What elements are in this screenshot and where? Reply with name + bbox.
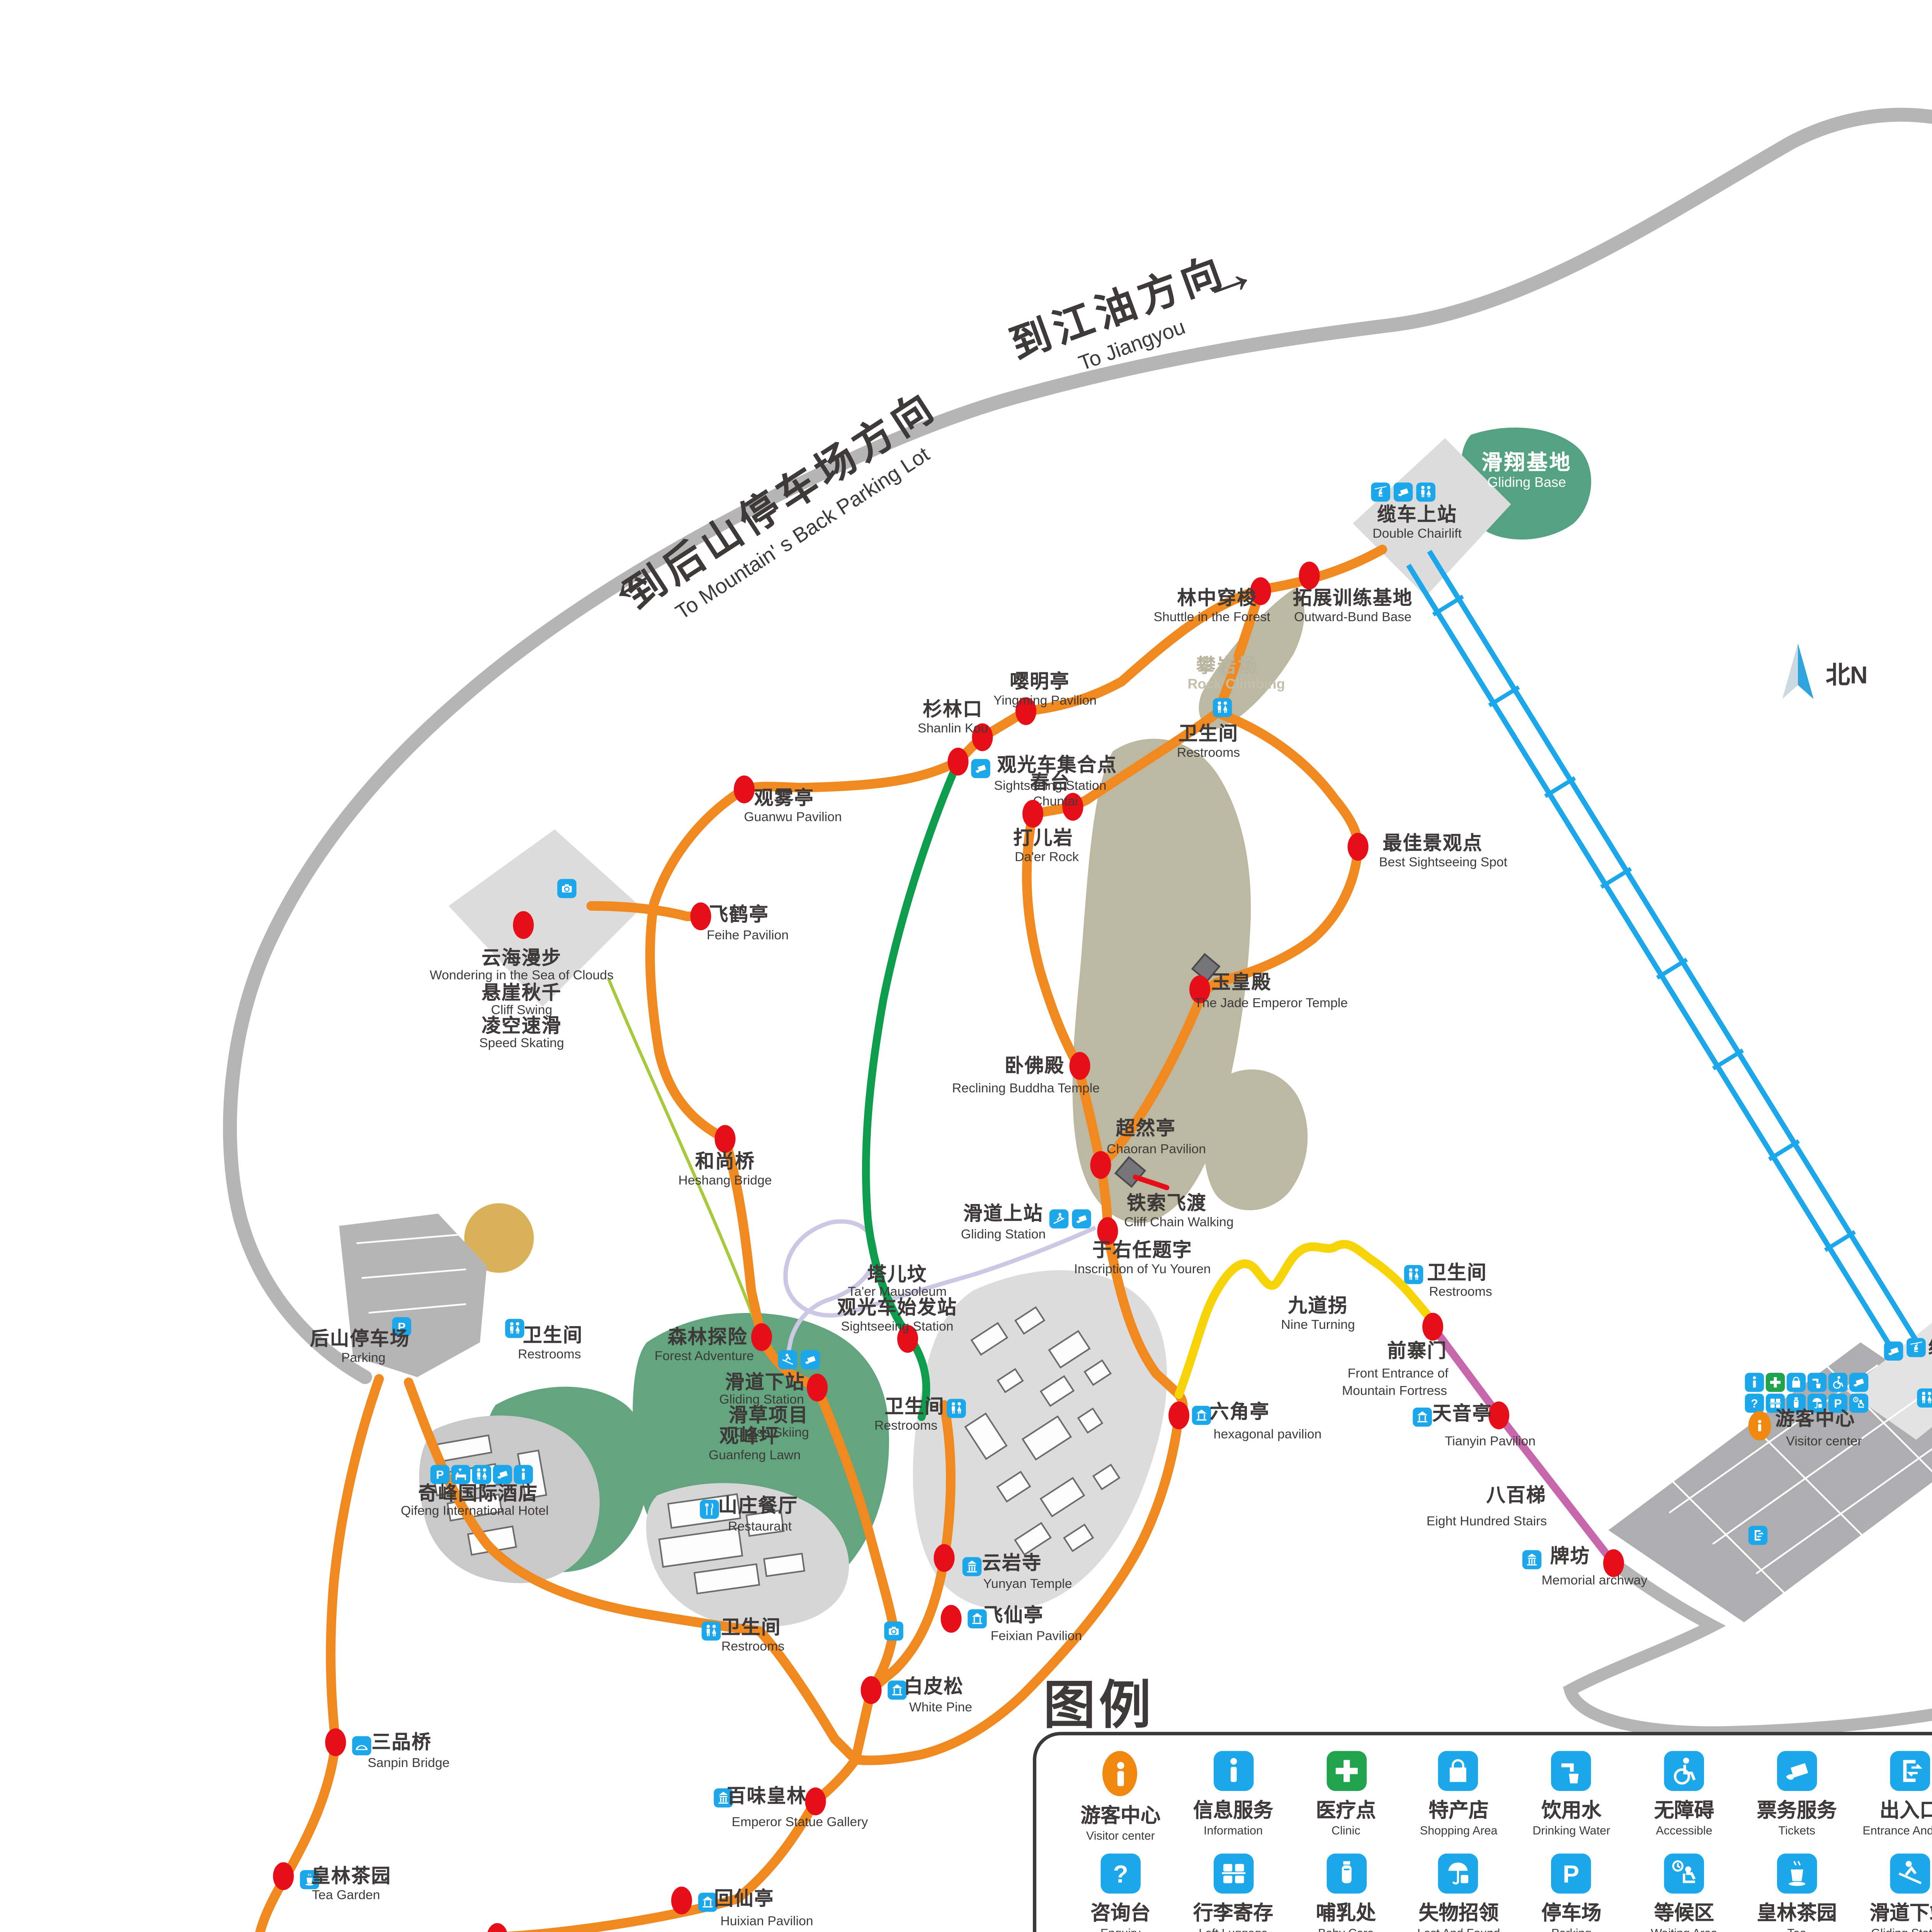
enquiry-icon-glyph: ? — [1747, 1395, 1762, 1411]
wheelchair-icon — [1664, 1751, 1704, 1791]
restroom-icon-glyph — [703, 1623, 719, 1639]
enquiry-icon: ? — [1100, 1854, 1141, 1894]
poi-label-yingming-pavilion-0: 嘤明亭 — [1010, 674, 1070, 693]
legend-zh-label: 哺乳处 — [1316, 1899, 1376, 1927]
info-icon-glyph — [515, 1467, 531, 1483]
poi-label-outward-bund-base-0: 拓展训练基地 — [1293, 590, 1413, 610]
door-icon-glyph — [1750, 1527, 1766, 1543]
pavilion-icon-glyph — [889, 1682, 905, 1698]
restroom-icon-glyph — [1418, 484, 1434, 500]
legend-item-r2-4: P停车场Parking — [1515, 1854, 1628, 1932]
restroom-icon-glyph — [507, 1321, 523, 1337]
poi-label-huixian-pavilion-0: 回仙亭 — [714, 1891, 774, 1910]
legend-zh-label: 信息服务 — [1193, 1796, 1273, 1824]
glide-up-icon — [1049, 1209, 1069, 1229]
legend-en-label: Drinking Water — [1532, 1826, 1610, 1838]
poi-label-jade-emperor-temple-1: The Jade Emperor Temple — [1194, 997, 1348, 1010]
restroom-icon — [1404, 1265, 1423, 1284]
waiting-icon — [1664, 1854, 1704, 1894]
north-arrow-icon — [1777, 640, 1819, 709]
poi-label-best-sightseeing-spot-0: 最佳景观点 — [1383, 835, 1483, 855]
temple-icon-glyph — [1524, 1552, 1540, 1568]
camera-icon — [557, 879, 577, 898]
legend-item-r1-2: 医疗点Clinic — [1289, 1751, 1402, 1844]
poi-dot-daer-rock — [1022, 800, 1043, 828]
door-icon-glyph — [1893, 1755, 1926, 1788]
parking-icon: P — [430, 1465, 450, 1484]
pavilion-icon — [1192, 1406, 1211, 1425]
poi-label-cliff-chain-walking-0: 铁索飞渡 — [1127, 1196, 1207, 1215]
poi-label-sea-of-clouds-3: Cliff Swing — [491, 1004, 553, 1017]
chairlift-icon-glyph — [1373, 484, 1389, 500]
poi-label-cable-bottom-station-0: 缆车下站 — [1929, 1340, 1932, 1359]
restroom-icon — [1416, 483, 1435, 502]
legend-item-r1-4: 饮用水Drinking Water — [1515, 1751, 1628, 1844]
poi-label-nine-turning-1: Nine Turning — [1281, 1318, 1355, 1332]
luggage-icon — [1213, 1854, 1253, 1894]
poi-label-memorial-archway-0: 牌坊 — [1550, 1548, 1590, 1568]
legend-en-label: Clinic — [1332, 1826, 1361, 1838]
poi-label-sanpin-bridge-0: 三品桥 — [372, 1735, 432, 1754]
poi-dot-feihe-pavilion — [690, 903, 711, 930]
poi-label-yu-youren-inscription-0: 于右任题字 — [1092, 1242, 1192, 1262]
ticket-icon-glyph — [803, 1352, 818, 1368]
poi-label-gliding-base-0: 滑翔基地 — [1481, 452, 1572, 473]
glide-down-icon — [1889, 1854, 1930, 1894]
poi-label-forest-adventure-0: 森林探险 — [668, 1329, 748, 1349]
restroom-icon-glyph — [1919, 1390, 1932, 1406]
glide-down-icon-glyph — [780, 1352, 796, 1368]
poi-label-restroom-villa-0: 卫生间 — [721, 1620, 781, 1639]
parking-icon-glyph: P — [432, 1467, 448, 1483]
cable-tick — [1769, 1141, 1799, 1159]
cable-tick — [1489, 687, 1519, 705]
restroom-icon — [505, 1319, 524, 1338]
legend-en-label: Tickets — [1778, 1826, 1815, 1838]
cable-tick — [1825, 1232, 1855, 1250]
chairlift-icon-glyph — [1908, 1340, 1924, 1355]
poi-dot-outward-bund-base — [1299, 562, 1320, 590]
ticket-icon — [1849, 1373, 1869, 1392]
cable-tick — [1657, 959, 1687, 978]
parking-icon-glyph: P — [1830, 1395, 1846, 1411]
chairlift-icon — [1906, 1338, 1926, 1357]
poi-label-visitor-center-0: 游客中心 — [1776, 1411, 1855, 1430]
restroom-icon — [1917, 1388, 1932, 1408]
legend-zh-label: 出入口 — [1879, 1796, 1932, 1824]
ticket-icon-glyph — [1395, 484, 1411, 500]
legend-title: 图例 — [1043, 1662, 1155, 1739]
legend-item-r1-6: 票务服务Tickets — [1740, 1751, 1853, 1844]
legend-zh-label: 皇林茶园 — [1757, 1899, 1837, 1927]
legend-item-r1-7: 出入口Entrance And Exit — [1853, 1751, 1932, 1844]
poi-label-shuttle-in-the-forest-0: 林中穿梭 — [1177, 590, 1257, 610]
poi-dot-glide-bottom-station — [807, 1374, 828, 1401]
ticket-icon-glyph — [1780, 1755, 1813, 1788]
poi-label-taer-sightseeing-start-3: Sightseeing Station — [841, 1320, 954, 1333]
legend-zh-label: 特产店 — [1429, 1796, 1488, 1824]
bridge-icon-glyph — [354, 1738, 370, 1754]
glide-up-icon-glyph — [1051, 1211, 1067, 1227]
camera-icon-glyph — [559, 881, 575, 896]
north-compass: 北N — [1777, 640, 1868, 709]
legend-item-r2-1: 行李寄存Left Luggage — [1177, 1854, 1290, 1932]
camera-icon-glyph — [886, 1623, 902, 1639]
poi-label-hexagonal-pavilion-0: 六角亭 — [1210, 1404, 1270, 1423]
svg-text:?: ? — [1751, 1397, 1758, 1410]
poi-label-outward-bund-base-1: Outward-Bund Base — [1294, 611, 1412, 624]
restroom-icon — [1213, 698, 1232, 718]
poi-label-cable-top-station-0: 缆车上站 — [1377, 507, 1457, 526]
poi-label-restroom-north-0: 卫生间 — [1179, 726, 1238, 745]
legend-item-r2-6: 皇林茶园Tea — [1740, 1854, 1853, 1932]
ticket-icon — [1777, 1751, 1817, 1791]
poi-label-rock-climbing-0: 攀岩场 — [1196, 658, 1259, 677]
waiting-icon-glyph — [1668, 1857, 1701, 1890]
camera-icon — [884, 1621, 903, 1641]
legend-zh-label: 停车场 — [1541, 1899, 1601, 1927]
info-icon-glyph — [1217, 1755, 1250, 1788]
poi-label-forest-adventure-1: Forest Adventure — [655, 1350, 754, 1363]
legend-en-label: Parking — [1551, 1929, 1592, 1932]
visitor-icon — [1748, 1411, 1771, 1441]
poi-dot-hexagonal-pavilion — [1168, 1401, 1189, 1429]
poi-label-heshang-bridge-0: 和尚桥 — [695, 1154, 755, 1173]
poi-dot-restroom-nine-turning — [1422, 1313, 1443, 1341]
legend-zh-label: 咨询台 — [1090, 1899, 1150, 1927]
shopping-icon — [1439, 1751, 1479, 1791]
poi-dot-yunyan-temple — [934, 1544, 955, 1572]
lost-icon — [1439, 1854, 1479, 1894]
poi-label-cable-top-station-1: Double Chairlift — [1372, 527, 1462, 541]
fork-icon-glyph — [702, 1502, 718, 1517]
poi-label-glide-bottom-station-0: 滑道下站 — [725, 1374, 805, 1394]
legend-en-label: Baby Care — [1318, 1929, 1374, 1932]
poi-label-glide-bottom-station-1: Gliding Station — [719, 1393, 804, 1406]
poi-label-heshang-bridge-1: Heshang Bridge — [678, 1174, 772, 1187]
poi-label-sea-of-clouds-2: 悬崖秋千 — [482, 985, 562, 1004]
waiting-icon-glyph — [1851, 1395, 1867, 1411]
poi-label-feihe-pavilion-1: Feihe Pavilion — [707, 929, 789, 942]
glide-down-icon — [778, 1350, 798, 1369]
info-icon-glyph — [1747, 1374, 1762, 1390]
ticket-icon — [1072, 1209, 1091, 1229]
poi-dot-sea-of-clouds — [513, 911, 534, 939]
restroom-icon-glyph — [474, 1467, 490, 1483]
shopping-icon — [1787, 1373, 1806, 1392]
legend-en-label: Information — [1204, 1826, 1263, 1838]
legend-facilities-row1: 游客中心Visitor center信息服务Information医疗点Clin… — [1064, 1751, 1932, 1844]
temple-icon — [1522, 1550, 1542, 1570]
legend-item-r1-1: 信息服务Information — [1177, 1751, 1290, 1844]
legend-item-r2-0: ?咨询台Enquiry — [1064, 1854, 1177, 1932]
door-icon — [1889, 1751, 1930, 1791]
poi-label-feixian-pavilion-0: 飞仙亭 — [984, 1607, 1044, 1627]
poi-dot-feixian-pavilion — [941, 1605, 962, 1633]
clinic-icon — [1326, 1751, 1366, 1791]
pavilion-icon — [1413, 1408, 1432, 1427]
poi-dot-best-sightseeing-spot — [1348, 833, 1369, 861]
poi-label-guanwu-pavilion-1: Guanwu Pavilion — [744, 811, 842, 824]
poi-label-restroom-temple-1: Restrooms — [874, 1419, 937, 1432]
poi-label-nine-turning-0: 九道拐 — [1288, 1298, 1348, 1317]
poi-label-restroom-back-parking-1: Restrooms — [518, 1348, 581, 1361]
svg-text:P: P — [436, 1469, 444, 1481]
baby-icon-glyph — [1330, 1857, 1363, 1890]
restroom-icon-glyph — [1214, 700, 1230, 716]
poi-label-visitor-center-1: Visitor center — [1786, 1435, 1862, 1448]
cable-tick — [1713, 1050, 1743, 1068]
poi-label-qifeng-hotel-0: 奇峰国际酒店 — [418, 1486, 538, 1505]
poi-dot-tea-garden — [273, 1862, 294, 1890]
restroom-icon-glyph — [1406, 1267, 1422, 1282]
pavilion-icon-glyph — [1415, 1409, 1430, 1425]
tea-icon — [1777, 1854, 1817, 1894]
poi-label-yunyan-temple-0: 云岩寺 — [982, 1555, 1042, 1575]
poi-dot-heshang-bridge — [715, 1125, 736, 1153]
legend-zh-label: 票务服务 — [1757, 1796, 1837, 1824]
cable-tick — [1545, 778, 1575, 796]
poi-label-back-parking-1: Parking — [341, 1352, 385, 1365]
tea-icon-glyph — [1780, 1857, 1813, 1890]
bridge-icon — [352, 1736, 371, 1755]
clinic-icon-glyph — [1767, 1374, 1783, 1390]
legend-en-label: Entrance And Exit — [1862, 1826, 1932, 1838]
poi-label-front-entrance-fortress-0: 前寨门 — [1387, 1343, 1447, 1362]
shopping-icon-glyph — [1788, 1374, 1804, 1390]
poi-label-emperor-statue-gallery-0: 百味皇林 — [727, 1788, 807, 1808]
scenic-map-poster: 滑翔基地Gliding Base缆车上站Double Chairlift拓展训练… — [0, 0, 1932, 1932]
legend-zh-label: 医疗点 — [1316, 1796, 1376, 1824]
visitor-icon-glyph — [1752, 1418, 1768, 1434]
poi-label-taer-sightseeing-start-0: 塔儿坟 — [867, 1267, 927, 1286]
water-icon-glyph — [1555, 1755, 1588, 1788]
water-icon-glyph — [1809, 1374, 1825, 1390]
ticket-icon-glyph — [1074, 1211, 1090, 1227]
poi-label-guanfeng-lawn-0: 观峰坪 — [719, 1429, 779, 1448]
poi-label-chaoran-pavilion-1: Chaoran Pavilion — [1107, 1143, 1206, 1156]
poi-dot-guanwu-pavilion — [734, 776, 755, 803]
poi-label-front-entrance-fortress-1: Front Entrance of — [1348, 1367, 1449, 1380]
legend-en-label: Waiting Area — [1651, 1929, 1717, 1932]
parking-icon-glyph: P — [1555, 1857, 1588, 1890]
poi-label-guanfeng-lawn-1: Guanfeng Lawn — [709, 1449, 801, 1462]
info-icon — [514, 1465, 533, 1484]
poi-label-qifeng-hotel-1: Qifeng International Hotel — [401, 1505, 549, 1518]
poi-label-villa-restaurant-1: Restaurant — [728, 1520, 792, 1533]
north-label: 北N — [1826, 657, 1868, 692]
poi-label-sea-of-clouds-4: 凌空速滑 — [482, 1018, 562, 1037]
legend-item-r2-3: 失物招领Lost And Found — [1402, 1854, 1515, 1932]
restroom-icon-glyph — [949, 1401, 964, 1417]
legend-en-label: Accessible — [1656, 1826, 1712, 1838]
legend-item-r2-5: 等候区Waiting Area — [1628, 1854, 1741, 1932]
glide-down-icon-glyph — [1893, 1857, 1926, 1890]
chairlift-icon — [1371, 483, 1390, 502]
parking-icon: P — [1551, 1854, 1592, 1894]
map-canvas: 滑翔基地Gliding Base缆车上站Double Chairlift拓展训练… — [0, 0, 1932, 1932]
poi-label-chuntai-0: 春台 — [1030, 775, 1070, 794]
poi-label-restroom-temple-0: 卫生间 — [884, 1399, 944, 1418]
baby-icon — [1326, 1854, 1366, 1894]
legend-zh-label: 无障碍 — [1654, 1796, 1714, 1824]
poi-label-shanlin-kou-0: 杉林口 — [923, 702, 983, 721]
legend-en-label: Tea — [1787, 1929, 1806, 1932]
legend-en-label: Left Luggage — [1199, 1929, 1268, 1932]
ticket-icon — [801, 1350, 820, 1369]
restroom-icon — [947, 1399, 966, 1418]
baby-icon-glyph — [1788, 1395, 1804, 1411]
legend-zh-label: 等候区 — [1654, 1899, 1714, 1927]
ticket-icon — [1394, 483, 1413, 502]
ticket-icon — [971, 759, 990, 778]
legend-en-label: Shopping Area — [1420, 1826, 1498, 1838]
poi-label-best-sightseeing-spot-1: Best Sightseeing Spot — [1379, 856, 1507, 869]
poi-dot-sightseeing-meeting-station — [948, 748, 969, 776]
water-icon — [1551, 1751, 1592, 1791]
poi-label-shanlin-kou-1: Shanlin Kou — [918, 722, 988, 735]
poi-dot-emperor-statue-gallery — [805, 1787, 826, 1815]
poi-label-feixian-pavilion-1: Feixian Pavilion — [991, 1630, 1082, 1643]
legend-item-r2-2: 哺乳处Baby Care — [1289, 1854, 1402, 1932]
bed-icon-glyph — [453, 1467, 469, 1483]
pavilion-icon-glyph — [700, 1895, 716, 1910]
poi-label-eight-hundred-stairs-1: Eight Hundred Stairs — [1427, 1515, 1547, 1528]
poi-label-tianyin-pavilion-1: Tianyin Pavilion — [1445, 1435, 1536, 1448]
legend-en-label: Gliding Station — [1871, 1929, 1932, 1932]
fork-icon — [700, 1500, 719, 1519]
poi-dot-sanpin-bridge — [325, 1728, 346, 1756]
poi-label-feihe-pavilion-0: 飞鹤亭 — [709, 907, 769, 926]
legend-zh-label: 失物招领 — [1419, 1899, 1499, 1927]
info-icon — [1213, 1751, 1253, 1791]
poi-label-reclining-buddha-temple-0: 卧佛殿 — [1005, 1058, 1065, 1077]
legend-facilities-row2: ?咨询台Enquiry行李寄存Left Luggage哺乳处Baby Care失… — [1064, 1854, 1932, 1932]
info-icon — [1745, 1373, 1764, 1392]
enquiry-icon: ? — [1745, 1394, 1764, 1413]
ticket-icon-glyph — [1886, 1343, 1901, 1359]
svg-text:?: ? — [1113, 1860, 1128, 1888]
poi-label-sea-of-clouds-0: 云海漫步 — [482, 950, 562, 969]
legend-zh-label: 滑道下站 — [1869, 1899, 1932, 1927]
lost-icon-glyph — [1809, 1395, 1825, 1411]
poi-label-yu-youren-inscription-1: Inscription of Yu Youren — [1074, 1263, 1211, 1276]
poi-label-restroom-nine-turning-1: Restrooms — [1429, 1286, 1492, 1299]
cable-tick — [1601, 869, 1631, 887]
poi-label-cliff-chain-walking-1: Cliff Chain Walking — [1124, 1216, 1233, 1229]
poi-dot-huixian-pavilion — [671, 1887, 692, 1915]
enquiry-icon-glyph: ? — [1104, 1857, 1137, 1890]
map-graphics — [0, 0, 1932, 1932]
legend-zh-label: 饮用水 — [1541, 1796, 1601, 1824]
poi-label-glide-top-station-1: Gliding Station — [961, 1228, 1046, 1241]
bed-icon — [451, 1465, 471, 1484]
poi-label-yingming-pavilion-1: Yingming Pavilion — [993, 694, 1097, 707]
legend-en-label: Lost And Found — [1417, 1929, 1500, 1932]
legend-item-r1-3: 特产店Shopping Area — [1402, 1751, 1515, 1844]
poi-label-tea-garden-0: 皇林茶园 — [311, 1868, 391, 1888]
poi-label-restroom-villa-1: Restrooms — [721, 1640, 784, 1653]
poi-dot-white-pine — [861, 1676, 882, 1704]
legend-item-r2-7: 滑道下站Gliding Station — [1853, 1854, 1932, 1932]
cable-tick — [1433, 596, 1463, 614]
poi-label-gliding-base-1: Gliding Base — [1487, 476, 1566, 490]
legend-item-r1-5: 无障碍Accessible — [1628, 1751, 1741, 1844]
poi-dot-forest-adventure — [751, 1323, 772, 1351]
poi-label-guanwu-pavilion-0: 观雾亭 — [754, 790, 814, 810]
poi-label-taer-sightseeing-start-2: 观光车始发站 — [837, 1300, 957, 1319]
ticket-icon-glyph — [973, 761, 989, 777]
ticket-icon — [1884, 1342, 1903, 1361]
poi-label-reclining-buddha-temple-1: Reclining Buddha Temple — [952, 1082, 1100, 1095]
poi-label-hexagonal-pavilion-1: hexagonal pavilion — [1214, 1428, 1322, 1441]
wheelchair-icon-glyph — [1830, 1374, 1846, 1390]
clinic-icon — [1766, 1373, 1785, 1392]
poi-label-memorial-archway-1: Memorial archway — [1542, 1574, 1648, 1587]
poi-dot-reclining-buddha-temple — [1070, 1052, 1090, 1080]
poi-label-eight-hundred-stairs-0: 八百梯 — [1486, 1488, 1546, 1507]
wheelchair-icon-glyph — [1668, 1755, 1701, 1788]
poi-label-front-entrance-fortress-2: Mountain Fortress — [1342, 1384, 1447, 1398]
water-icon — [1808, 1373, 1827, 1392]
poi-label-huixian-pavilion-1: Huixian Pavilion — [720, 1915, 813, 1928]
lost-icon-glyph — [1442, 1857, 1475, 1890]
poi-label-tianyin-pavilion-0: 天音亭 — [1432, 1406, 1492, 1425]
poi-label-daer-rock-0: 打儿岩 — [1013, 830, 1073, 850]
poi-label-sea-of-clouds-5: Speed Skating — [479, 1037, 564, 1050]
legend-box: 游客中心Visitor center信息服务Information医疗点Clin… — [1033, 1732, 1932, 1932]
temple-icon — [963, 1557, 982, 1577]
poi-label-jade-emperor-temple-0: 玉皇殿 — [1211, 975, 1271, 994]
svg-text:P: P — [1563, 1860, 1580, 1888]
luggage-icon-glyph — [1767, 1395, 1783, 1411]
legend-item-r1-0: 游客中心Visitor center — [1064, 1751, 1177, 1844]
poi-label-taer-sightseeing-start-1: Ta'er Mausoleum — [848, 1286, 947, 1299]
poi-label-daer-rock-1: Da'er Rock — [1015, 851, 1079, 864]
poi-label-yunyan-temple-1: Yunyan Temple — [983, 1578, 1072, 1591]
poi-label-shuttle-in-the-forest-1: Shuttle in the Forest — [1153, 611, 1270, 624]
restroom-icon — [472, 1465, 492, 1484]
ticket-icon-glyph — [495, 1467, 510, 1483]
poi-label-glide-bottom-station-2: 滑草项目 — [729, 1408, 809, 1427]
poi-label-white-pine-1: White Pine — [909, 1701, 972, 1714]
ticket-icon — [493, 1465, 512, 1484]
poi-label-tea-garden-1: Tea Garden — [312, 1889, 380, 1902]
legend-zh-label: 游客中心 — [1080, 1801, 1160, 1829]
poi-label-restroom-nine-turning-0: 卫生间 — [1427, 1265, 1487, 1284]
legend-en-label: Enquiry — [1100, 1929, 1141, 1932]
luggage-icon-glyph — [1217, 1857, 1250, 1890]
poi-label-glide-top-station-0: 滑道上站 — [963, 1206, 1043, 1225]
legend-zh-label: 行李寄存 — [1193, 1899, 1273, 1927]
shopping-icon-glyph — [1442, 1755, 1475, 1788]
poi-label-chaoran-pavilion-0: 超然亭 — [1116, 1121, 1176, 1140]
temple-icon-glyph — [964, 1559, 980, 1575]
visitor-icon — [1103, 1751, 1138, 1796]
restroom-icon — [702, 1621, 721, 1641]
poi-label-back-parking-0: 后山停车场 — [310, 1331, 410, 1350]
poi-label-villa-restaurant-0: 山庄餐厅 — [718, 1498, 798, 1517]
pavilion-icon-glyph — [1194, 1408, 1209, 1423]
door-icon — [1748, 1526, 1768, 1545]
poi-label-emperor-statue-gallery-1: Emperor Statue Gallery — [732, 1816, 868, 1829]
poi-label-restroom-north-1: Restrooms — [1177, 747, 1240, 760]
pavilion-icon-glyph — [969, 1611, 985, 1627]
poi-label-sea-of-clouds-1: Wondering in the Sea of Clouds — [430, 969, 614, 982]
poi-label-restroom-back-parking-0: 卫生间 — [523, 1328, 583, 1347]
cliff-east-lobe — [1204, 1070, 1308, 1210]
legend-en-label: Visitor center — [1086, 1831, 1155, 1844]
